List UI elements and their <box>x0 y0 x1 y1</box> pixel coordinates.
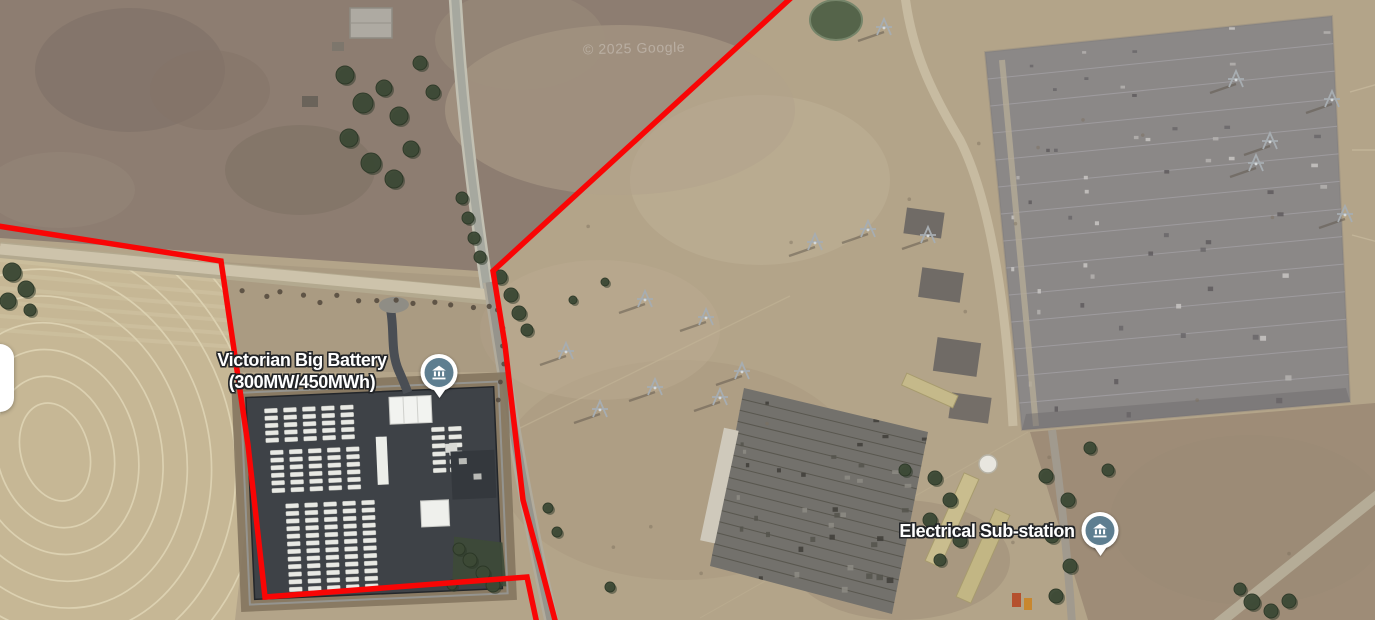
poi-pin <box>1082 512 1119 549</box>
civic-building-icon <box>1086 516 1115 545</box>
poi-marker-electrical-substation[interactable] <box>1082 512 1119 556</box>
poi-pin <box>421 354 458 391</box>
poi-pin-tail <box>1093 546 1107 556</box>
site-boundary-overlay <box>0 0 1375 620</box>
poi-marker-victorian-big-battery[interactable] <box>421 354 458 398</box>
side-panel-card[interactable] <box>0 344 14 412</box>
poi-pin-tail <box>432 388 446 398</box>
poi-label-victorian-big-battery[interactable]: Victorian Big Battery (300MW/450MWh) <box>217 349 386 393</box>
poi-label-electrical-substation[interactable]: Electrical Sub-station <box>899 520 1074 542</box>
civic-building-icon <box>425 358 454 387</box>
site-boundary-east <box>493 0 792 620</box>
satellite-map[interactable]: © 2025 Google Victorian Big Battery (300… <box>0 0 1375 620</box>
poi-label-line1: Electrical Sub-station <box>899 520 1074 542</box>
poi-label-line2: (300MW/450MWh) <box>217 371 386 393</box>
site-boundary-west <box>0 226 537 620</box>
poi-label-line1: Victorian Big Battery <box>217 349 386 371</box>
